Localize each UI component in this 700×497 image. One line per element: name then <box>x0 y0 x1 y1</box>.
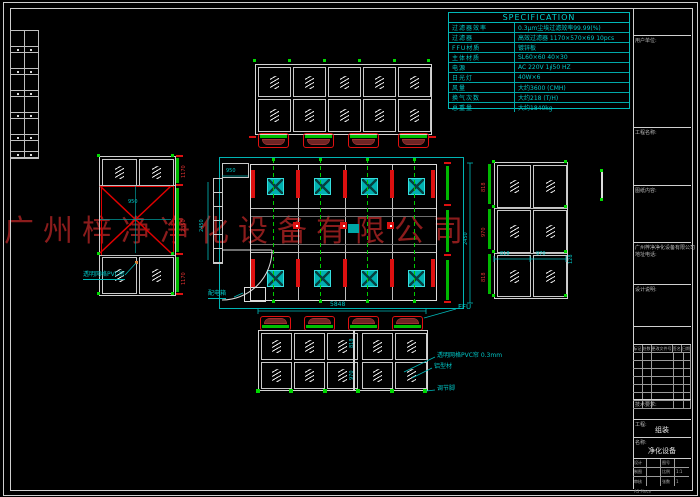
project-value: 组装 <box>633 425 691 435</box>
title-block-cell: 图纸内容: <box>633 185 691 242</box>
project-cell: 工程: 组装 <box>633 419 691 437</box>
title-block-cell: 广州梓净净化设备有限公司 地址电话: <box>633 242 691 284</box>
door-swing <box>222 250 272 300</box>
drawing-lines-layer <box>0 0 700 497</box>
sheet-footer: A3 Piece <box>634 490 651 494</box>
title-block-cell: 工程名称: <box>633 127 691 185</box>
revision-row <box>633 377 691 385</box>
title-block-cell: 技术要求: <box>633 399 691 419</box>
signature-grid: 设计 图号 制图 比例 1:1 审核 张数 1 <box>633 458 691 485</box>
title-block-label: 图纸内容: <box>635 188 657 194</box>
leader-lines <box>125 263 456 391</box>
title-block-cell <box>633 8 691 35</box>
revision-row: 标记 处数 更改文件号 签名 日期 <box>633 345 691 353</box>
title-block-label: 广州梓净净化设备有限公司 <box>635 245 695 251</box>
revision-row <box>633 369 691 377</box>
drawing-name-value: 净化设备 <box>633 446 691 456</box>
revision-table: 标记 处数 更改文件号 签名 日期 <box>633 344 691 399</box>
title-block-cell: 设计说明: <box>633 284 691 326</box>
dimension-lines <box>208 163 566 314</box>
revision-row <box>633 353 691 361</box>
title-block-label: 设计说明: <box>635 287 657 293</box>
title-block-label: 地址电话: <box>635 252 657 258</box>
cad-drawing-page: 广州梓净净化设备有限公司 SPECIFICATION 过滤器效率0.3μm尘埃过… <box>0 0 700 497</box>
title-block-label: 技术要求: <box>635 402 657 408</box>
revision-row <box>633 361 691 369</box>
title-block-label: 用户单位: <box>635 38 657 44</box>
revision-row <box>633 385 691 393</box>
drawing-name-cell: 名称: 净化设备 <box>633 437 691 458</box>
title-block-label: 工程名称: <box>635 130 657 136</box>
title-block-cell <box>633 326 691 344</box>
plan-centerlines <box>274 159 415 303</box>
title-block-cell: 用户单位: <box>633 35 691 127</box>
